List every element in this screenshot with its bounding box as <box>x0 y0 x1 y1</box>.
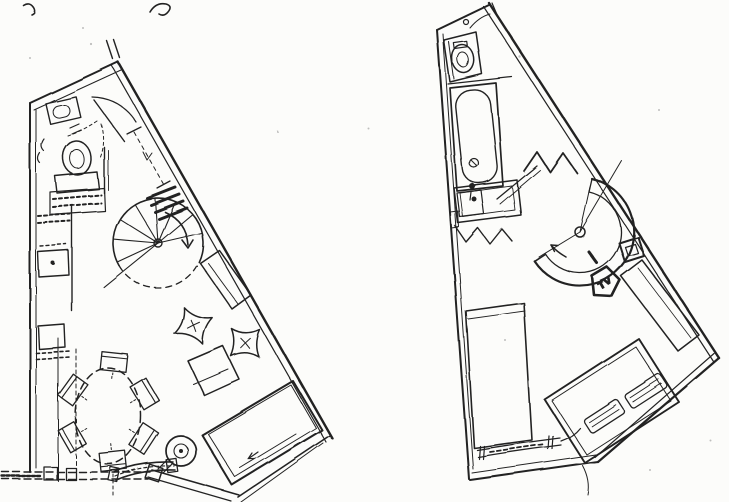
direction-arrow <box>551 245 566 257</box>
appliance <box>38 324 65 349</box>
outer-arc <box>535 179 634 286</box>
scan-noise <box>29 27 711 471</box>
scanned-floor-plan-page: TV <box>0 0 729 502</box>
wall-bench <box>200 250 251 309</box>
pillow <box>583 398 625 433</box>
toilet <box>38 124 108 215</box>
sofa-bed <box>202 381 322 485</box>
window-band <box>2 467 150 480</box>
floor-cushion <box>230 328 261 358</box>
stair-dashed-arc <box>119 262 199 288</box>
dining-chair <box>124 378 160 414</box>
wc-counter <box>50 188 105 215</box>
dining-chair <box>123 419 159 455</box>
spiral-staircase <box>104 198 203 288</box>
floor-plan-drawing: TV <box>0 0 729 502</box>
spiral-stair-opening <box>535 161 634 286</box>
lower-level-floor-plan <box>2 40 332 502</box>
handwritten-scribble <box>24 4 170 15</box>
dining-chair <box>99 352 128 381</box>
toilet-bowl <box>61 140 92 177</box>
sketch: TV <box>2 3 719 502</box>
stair-solid-arc <box>113 198 203 265</box>
balcony-parapet <box>145 436 329 502</box>
radiator <box>477 428 589 495</box>
stair-hatch-marks <box>147 187 187 219</box>
tv-stand: TV <box>589 252 620 296</box>
toilet <box>450 41 476 75</box>
door-swing-arc <box>92 97 136 122</box>
platform-zigzag <box>455 226 512 244</box>
floor-cushion <box>173 306 213 345</box>
desk <box>621 260 699 351</box>
upper-level-floor-plan: TV <box>437 3 719 495</box>
wardrobe <box>466 303 532 448</box>
kitchen-counter <box>36 206 76 481</box>
door-leaf <box>94 100 124 141</box>
tv-label: TV <box>596 275 614 292</box>
pillow <box>624 373 668 409</box>
coat-cabinet <box>46 97 81 124</box>
inner-arc <box>546 192 621 273</box>
bathtub <box>450 83 503 202</box>
